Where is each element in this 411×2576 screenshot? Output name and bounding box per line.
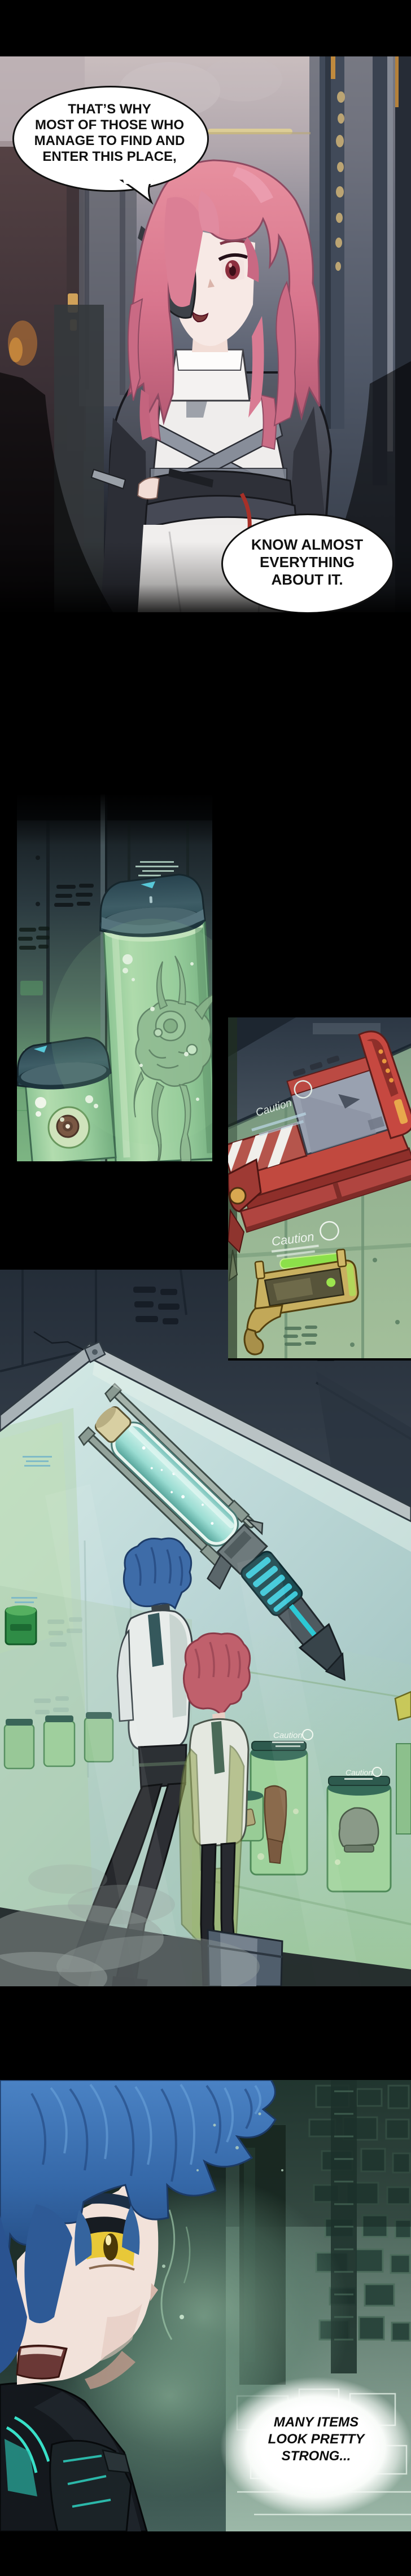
svg-text:Caution: Caution: [346, 1768, 373, 1777]
